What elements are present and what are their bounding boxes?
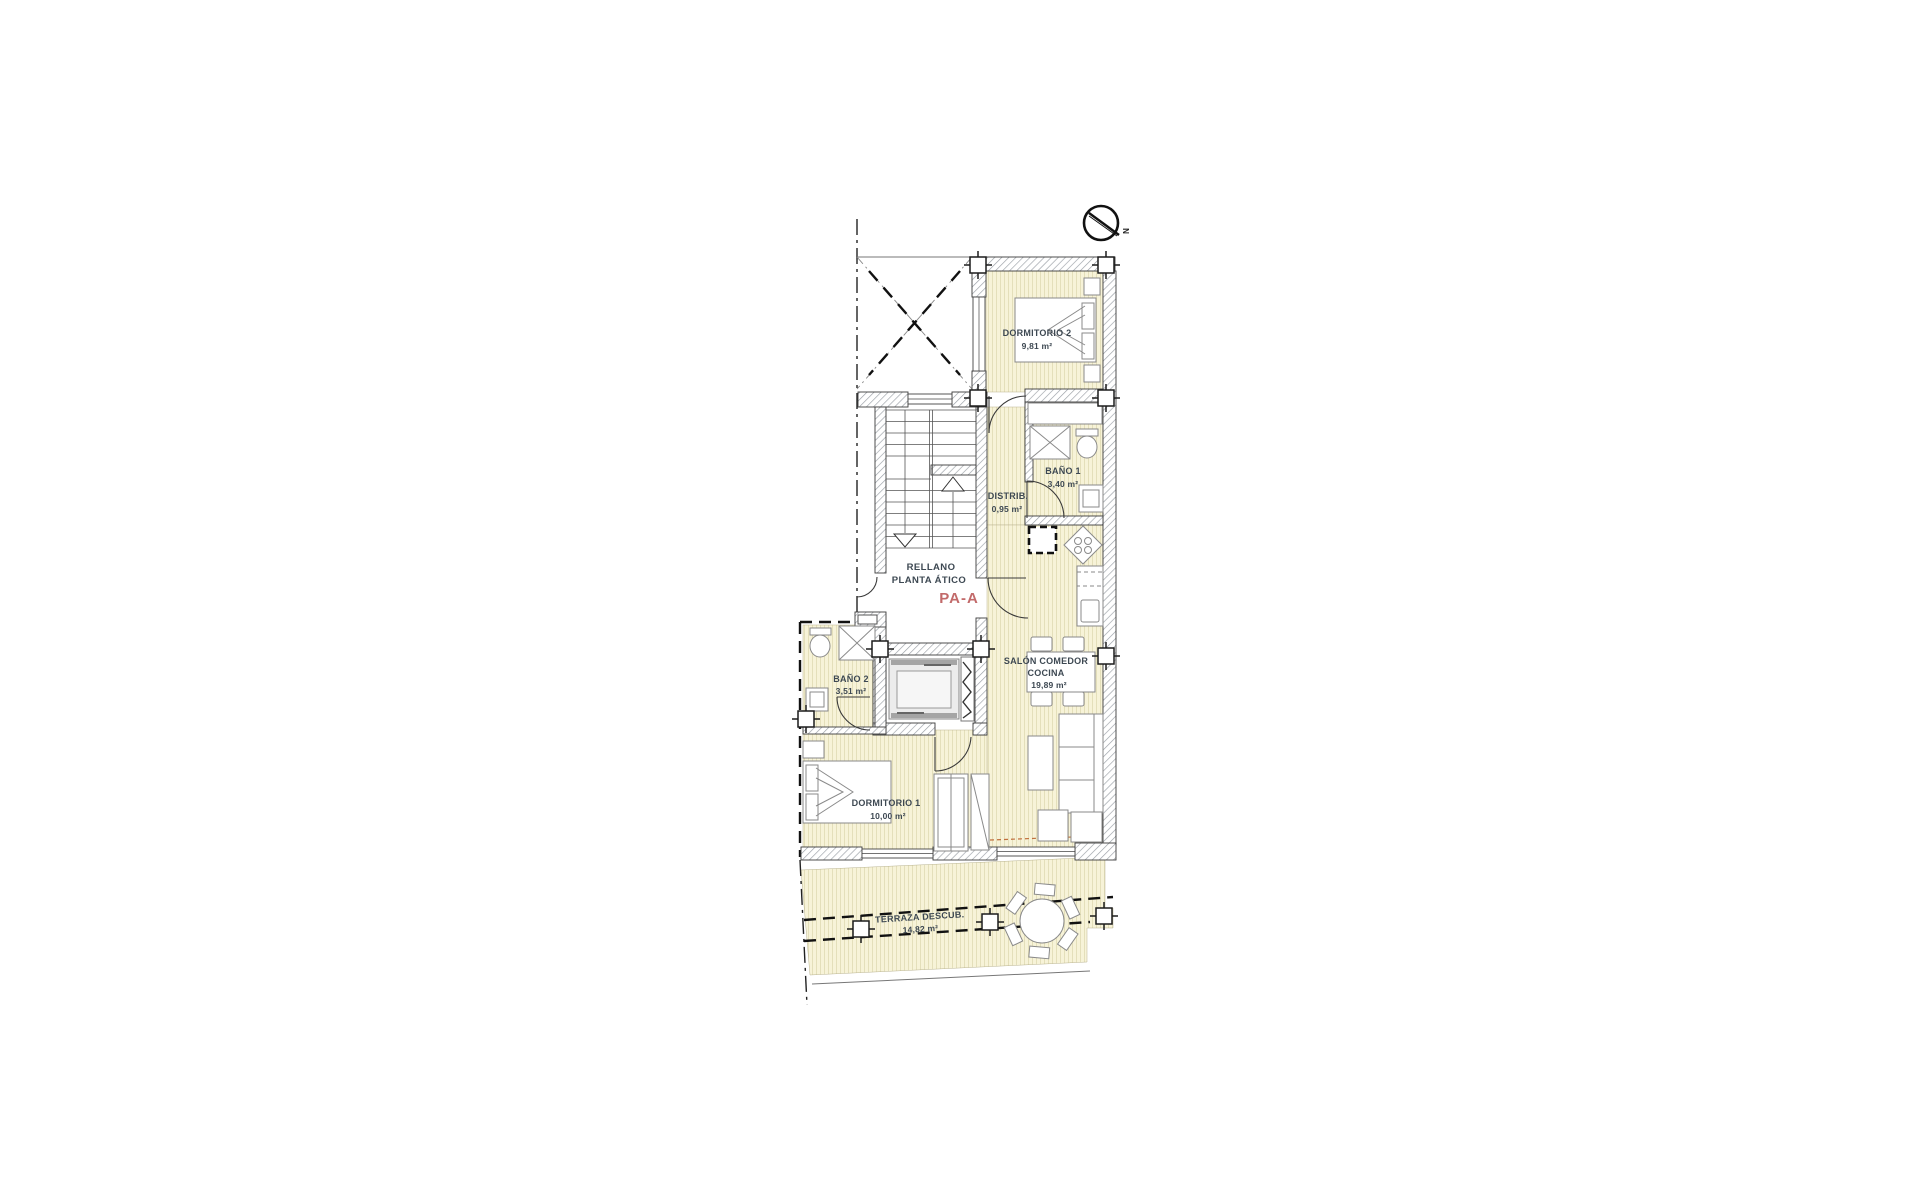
area-dormitorio2: 9,81 m² [1022,341,1053,351]
stair-down-arrow [894,534,916,547]
nightstand [803,741,824,758]
toilet-tank [1076,429,1098,436]
north-compass: N [1084,206,1130,240]
void-cross-box [857,257,972,389]
round-table [1020,899,1064,943]
label-dormitorio1: DORMITORIO 1 [852,798,921,808]
label-unit-code: PA-A [939,590,979,607]
coffee-table [1028,736,1053,790]
kitchen-column [1029,527,1056,553]
chair [1031,637,1052,651]
area-distrib: 0,95 m² [992,504,1023,514]
label-bano2: BAÑO 2 [833,674,869,684]
chair [1063,637,1084,651]
label-bano1: BAÑO 1 [1045,466,1081,476]
area-dormitorio1: 10,00 m² [870,811,906,821]
ottoman [1071,812,1102,842]
ottoman [1038,810,1068,841]
label-salon-1: SALÓN COMEDOR [1004,655,1089,666]
floor-plan-svg: N DORMITORIO 2 9,81 m² BAÑO 1 3,40 m² DI… [0,0,1920,1200]
nightstand [1084,365,1100,382]
area-bano2: 3,51 m² [836,686,867,696]
toilet-1 [1077,436,1097,458]
label-distrib: DISTRIB. [988,491,1029,501]
staircase [886,410,976,548]
sofa [1059,714,1103,813]
toilet-2 [810,635,830,657]
floor-plan-page: N DORMITORIO 2 9,81 m² BAÑO 1 3,40 m² DI… [0,0,1920,1200]
area-bano1: 3,40 m² [1048,479,1079,489]
chair [1063,692,1084,706]
area-salon: 19,89 m² [1031,680,1067,690]
nightstand [1084,278,1100,295]
door-landing [857,577,877,597]
pillow [1082,333,1094,359]
compass-north-letter: N [1121,228,1130,234]
label-dormitorio2: DORMITORIO 2 [1003,328,1072,338]
label-salon-2: COCINA [1028,668,1065,678]
compass-needle [1089,213,1119,235]
chair [1031,692,1052,706]
label-rellano-2: PLANTA ÁTICO [892,575,966,586]
kitchen-sink [1081,600,1099,622]
vanity [1028,403,1102,424]
label-rellano-1: RELLANO [907,562,956,573]
toilet-tank [810,628,831,635]
elevator [889,657,974,721]
stair-up-arrow [942,477,964,491]
window-landing [858,615,877,624]
